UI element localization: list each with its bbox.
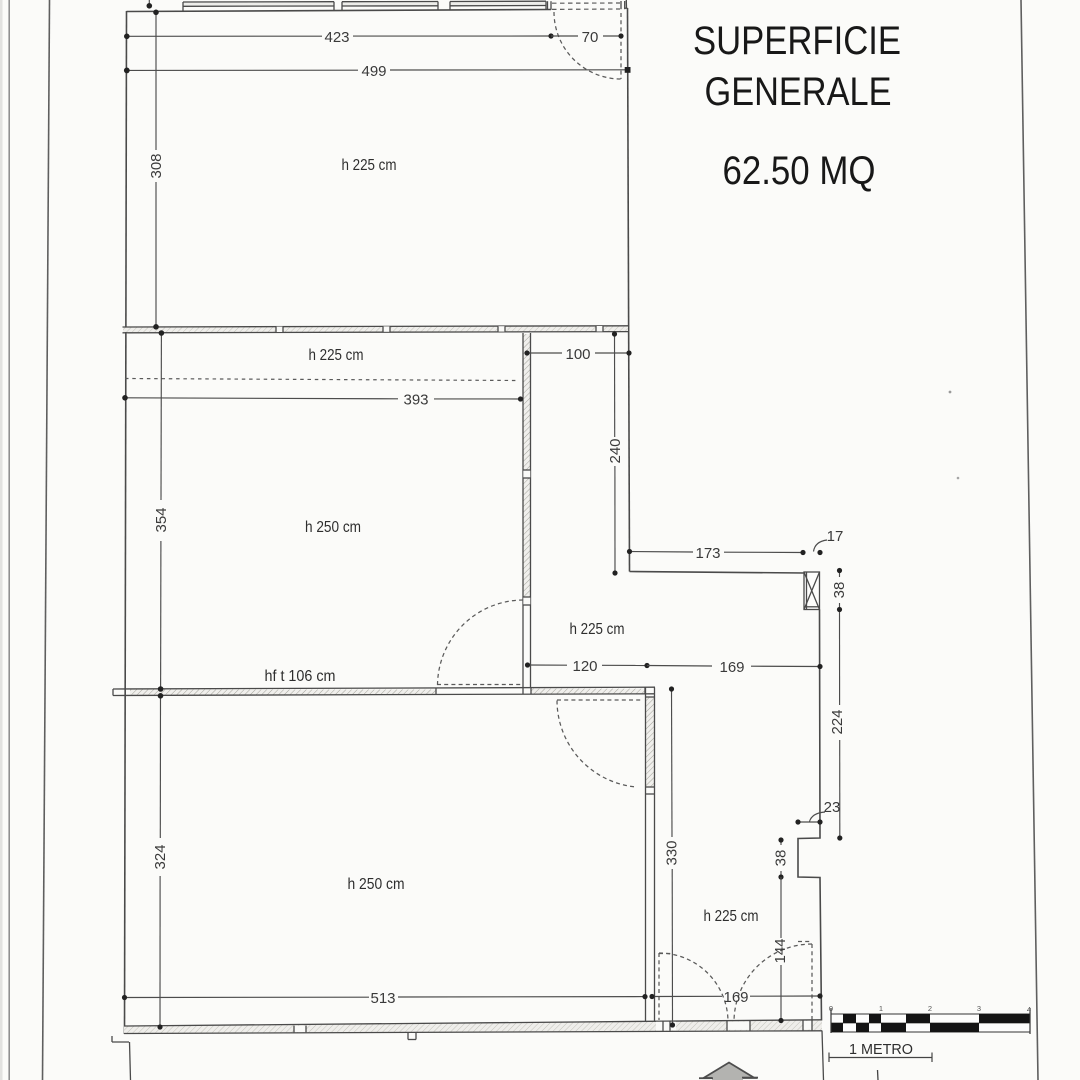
svg-text:240: 240 — [607, 438, 624, 463]
svg-text:499: 499 — [361, 63, 386, 80]
svg-text:0: 0 — [829, 1004, 833, 1013]
svg-text:h 250 cm: h 250 cm — [305, 519, 361, 536]
svg-text:120: 120 — [572, 658, 597, 675]
svg-text:173: 173 — [695, 545, 720, 562]
svg-text:h 250 cm: h 250 cm — [348, 876, 405, 893]
svg-text:3: 3 — [977, 1004, 981, 1013]
svg-text:1 METRO: 1 METRO — [849, 1041, 913, 1058]
svg-text:224: 224 — [829, 709, 846, 734]
svg-text:h 225 cm: h 225 cm — [342, 157, 397, 174]
svg-text:330: 330 — [664, 840, 681, 865]
svg-text:38: 38 — [831, 582, 848, 599]
svg-text:17: 17 — [827, 528, 844, 545]
svg-text:354: 354 — [153, 507, 170, 532]
svg-text:513: 513 — [370, 990, 395, 1007]
svg-text:1: 1 — [879, 1004, 883, 1013]
svg-text:100: 100 — [565, 346, 590, 363]
svg-text:62.50 MQ: 62.50 MQ — [723, 149, 876, 193]
svg-text:308: 308 — [148, 153, 165, 178]
svg-text:393: 393 — [403, 392, 428, 409]
svg-text:GENERALE: GENERALE — [705, 70, 892, 114]
svg-text:4: 4 — [1027, 1005, 1031, 1014]
svg-text:324: 324 — [152, 844, 169, 869]
svg-text:SUPERFICIE: SUPERFICIE — [693, 19, 901, 63]
svg-text:h 225 cm: h 225 cm — [704, 908, 759, 925]
svg-text:169: 169 — [719, 659, 744, 676]
svg-text:2: 2 — [928, 1004, 932, 1013]
svg-text:38: 38 — [773, 850, 790, 867]
svg-text:169: 169 — [723, 989, 748, 1006]
svg-text:23: 23 — [824, 799, 841, 816]
svg-text:h 225 cm: h 225 cm — [570, 621, 625, 638]
svg-text:144: 144 — [772, 938, 789, 963]
svg-text:423: 423 — [324, 29, 349, 46]
svg-text:70: 70 — [582, 29, 599, 46]
svg-text:hf t 106 cm: hf t 106 cm — [265, 668, 336, 685]
svg-text:h 225 cm: h 225 cm — [309, 347, 364, 364]
